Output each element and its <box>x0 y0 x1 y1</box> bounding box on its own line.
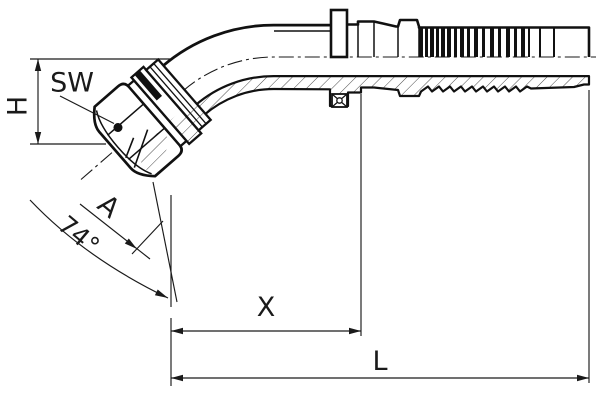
label-sw: SW <box>50 67 94 98</box>
fitting-technical-drawing: H SW A 74° X L <box>0 0 600 400</box>
dim-x-arrow-left <box>171 328 183 334</box>
dim-l <box>171 90 589 383</box>
o-ring-circle <box>337 98 342 103</box>
dim-a-extension-face <box>132 221 163 254</box>
retaining-collar <box>331 10 347 57</box>
label-a: A <box>91 189 125 225</box>
dim-l-arrow-right <box>577 375 589 381</box>
shank-step-edges <box>358 22 419 58</box>
dim-x <box>171 94 361 386</box>
dim-h-arrow-top <box>35 59 41 71</box>
hose-shank <box>331 10 589 107</box>
shank-dividers <box>540 28 554 58</box>
dim-h-arrow-bottom <box>35 132 41 144</box>
label-h: H <box>2 96 33 116</box>
serrations <box>419 28 530 58</box>
swivel-nut <box>85 55 215 185</box>
angle-arc-arrow <box>155 290 168 299</box>
dim-a-extension-corner <box>153 182 177 302</box>
label-l: L <box>372 346 387 377</box>
o-ring-seal <box>332 94 347 107</box>
section-wall-band <box>196 76 590 115</box>
dim-x-arrow-right <box>349 328 361 334</box>
label-x: X <box>257 292 276 323</box>
technical-drawing-page: H SW A 74° X L <box>0 0 600 400</box>
elbow-bend <box>162 25 331 67</box>
dim-l-arrow-left <box>171 375 183 381</box>
